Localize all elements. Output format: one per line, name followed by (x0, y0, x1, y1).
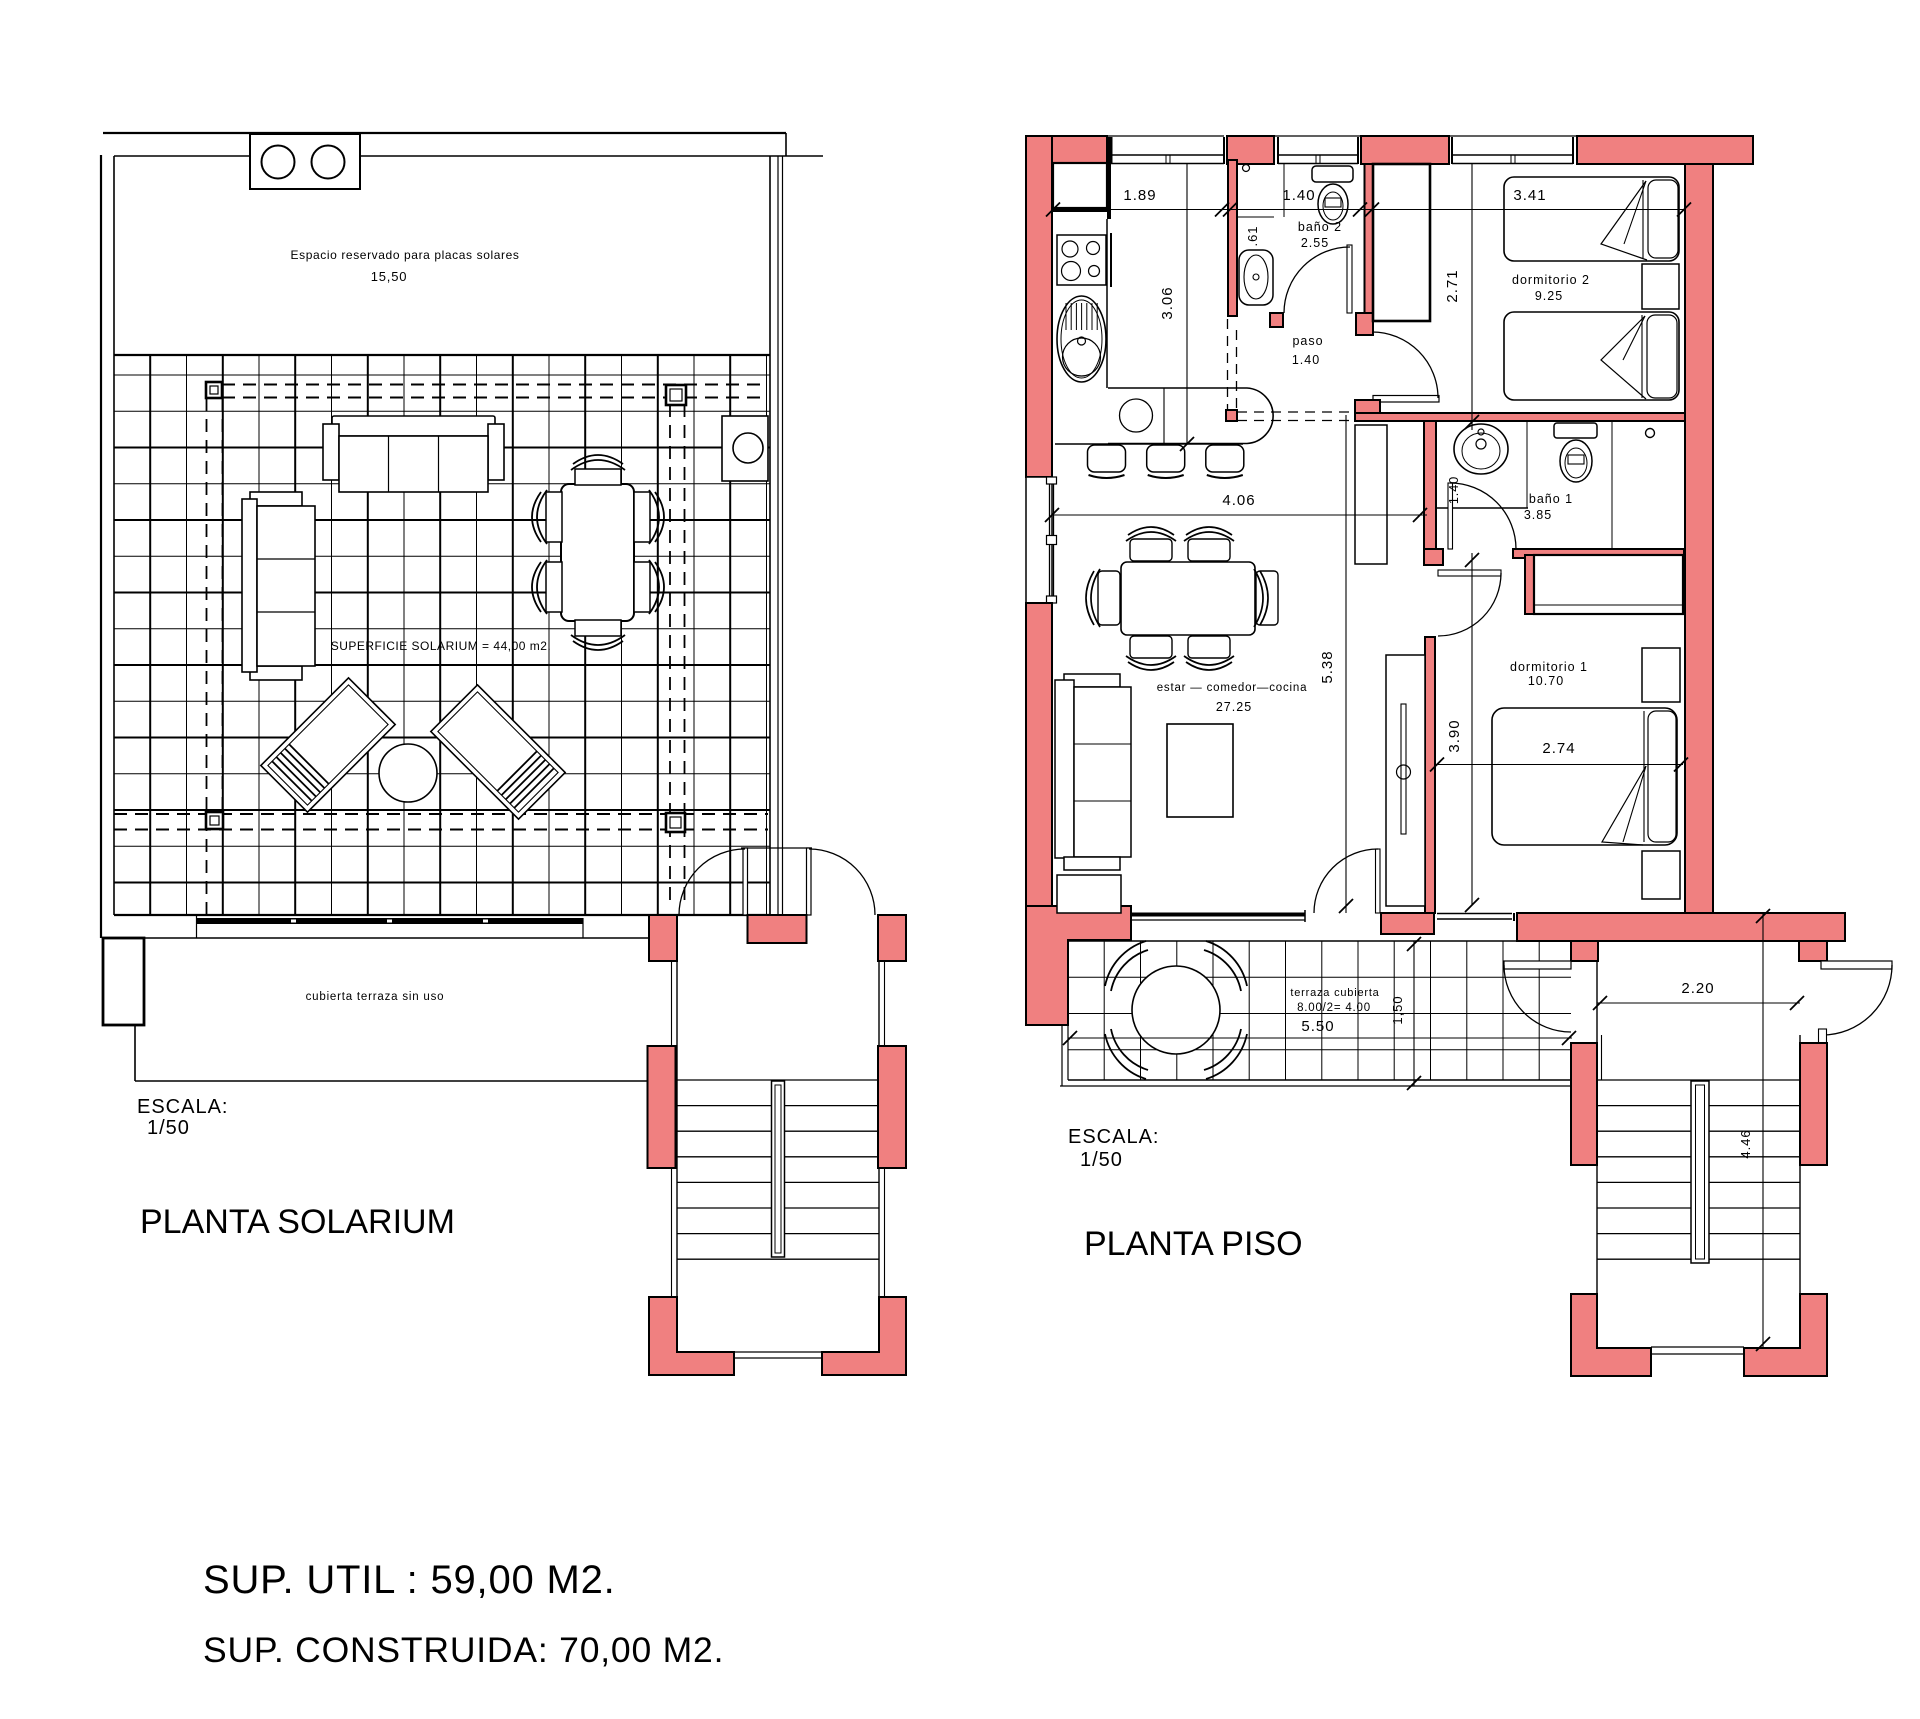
svg-text:ESCALA:: ESCALA: (137, 1096, 228, 1118)
svg-text:SUP. CONSTRUIDA: 70,00 M2.: SUP. CONSTRUIDA: 70,00 M2. (203, 1630, 724, 1670)
svg-text:paso: paso (1292, 334, 1323, 348)
svg-text:estar — comedor—cocina: estar — comedor—cocina (1157, 682, 1308, 694)
svg-text:PLANTA PISO: PLANTA PISO (1084, 1225, 1303, 1263)
svg-text:5.50: 5.50 (1301, 1018, 1334, 1035)
svg-text:1,50: 1,50 (1390, 995, 1405, 1024)
svg-text:.61: .61 (1245, 225, 1260, 246)
svg-text:1.40: 1.40 (1292, 353, 1320, 367)
svg-text:ESCALA:: ESCALA: (1068, 1126, 1159, 1148)
svg-text:2.20: 2.20 (1681, 980, 1714, 997)
svg-text:3.06: 3.06 (1159, 286, 1176, 319)
svg-text:3.85: 3.85 (1524, 508, 1552, 522)
svg-text:terraza cubierta: terraza cubierta (1290, 987, 1379, 999)
svg-text:dormitorio 2: dormitorio 2 (1512, 273, 1590, 287)
svg-text:5.38: 5.38 (1319, 650, 1336, 683)
svg-text:1.40: 1.40 (1447, 476, 1461, 504)
svg-text:2.74: 2.74 (1542, 740, 1575, 757)
svg-text:baño 2: baño 2 (1298, 220, 1342, 234)
svg-text:SUP. UTIL : 59,00 M2.: SUP. UTIL : 59,00 M2. (203, 1558, 616, 1602)
svg-text:3.90: 3.90 (1446, 719, 1463, 752)
svg-text:9.25: 9.25 (1535, 289, 1563, 303)
svg-text:dormitorio 1: dormitorio 1 (1510, 660, 1588, 674)
svg-text:4.06: 4.06 (1222, 492, 1255, 509)
svg-text:Espacio reservado para plac: Espacio reservado para placas solares (291, 248, 520, 262)
svg-text:SUPERFICIE SOLARIUM = 44,00: SUPERFICIE SOLARIUM = 44,00 m2. (331, 639, 552, 653)
svg-text:10.70: 10.70 (1528, 674, 1564, 688)
svg-text:4.46: 4.46 (1738, 1129, 1753, 1158)
svg-text:1/50: 1/50 (147, 1117, 190, 1139)
svg-text:1.89: 1.89 (1123, 187, 1156, 204)
svg-text:15,50: 15,50 (371, 269, 408, 284)
svg-text:3.41: 3.41 (1513, 187, 1546, 204)
svg-text:1.40: 1.40 (1282, 187, 1315, 204)
svg-text:8.00/2= 4.00: 8.00/2= 4.00 (1297, 1002, 1371, 1014)
svg-text:2.55: 2.55 (1301, 236, 1329, 250)
svg-text:2.71: 2.71 (1444, 269, 1461, 302)
svg-text:27.25: 27.25 (1216, 700, 1252, 714)
svg-text:cubierta terraza sin uso: cubierta terraza sin uso (306, 991, 445, 1003)
svg-text:PLANTA SOLARIUM: PLANTA SOLARIUM (140, 1203, 455, 1241)
svg-text:1/50: 1/50 (1080, 1149, 1123, 1171)
svg-text:baño 1: baño 1 (1529, 492, 1573, 506)
